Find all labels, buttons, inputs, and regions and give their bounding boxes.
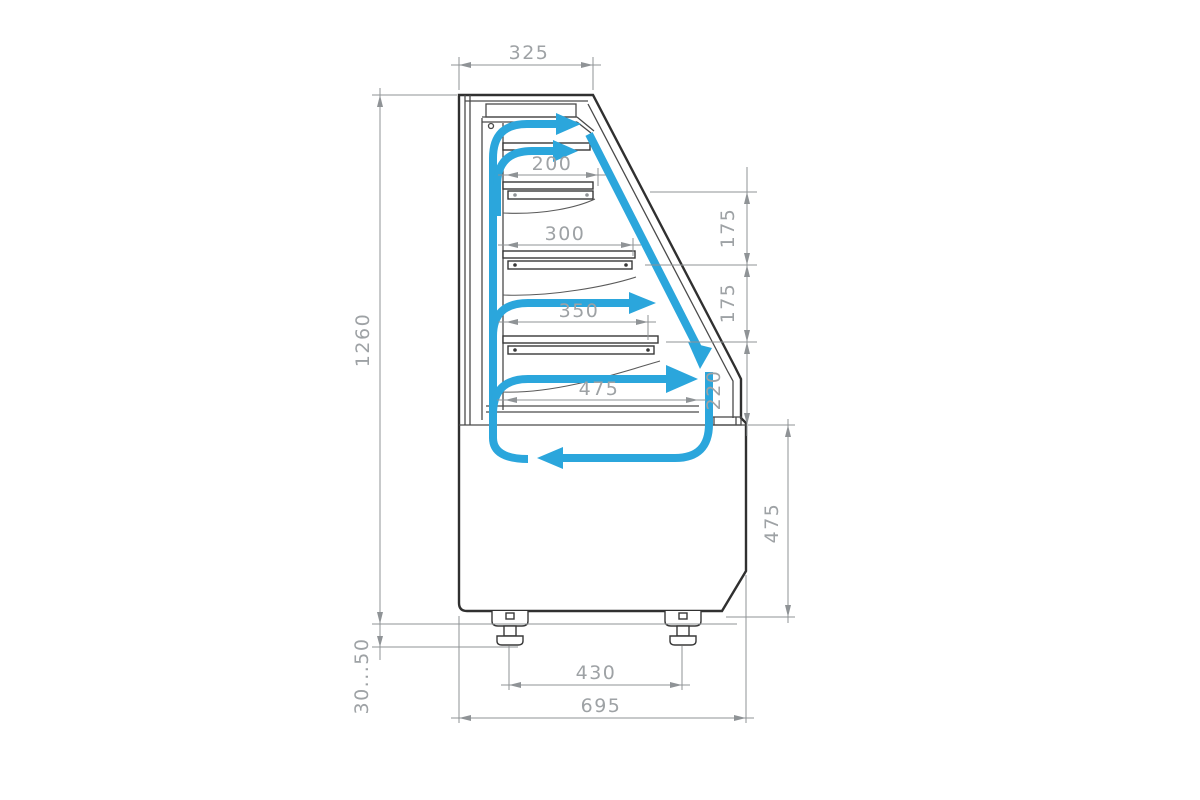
dim-gap-lower-label: 175 [717,283,739,324]
shelf-2-board [503,251,635,258]
shelf-3-board [503,336,658,343]
arrowhead-shelf2-icon [629,292,656,314]
feet [492,611,701,645]
airflow-arrows [493,124,709,459]
display-case-diagram: 325 1260 30...50 430 695 [0,0,1200,800]
front-sill-ticks [714,417,736,425]
dim-front-glass-height-label: 220 [703,370,725,411]
shelf-3-rail [508,346,654,354]
shelf-2-bracket-curve [503,277,636,295]
shelf-1-board [503,182,593,189]
dim-top-depth-label: 325 [509,42,550,64]
dim-base-height-label: 475 [761,503,783,544]
shelf-1-screw-right [585,193,589,197]
adjustable-foot-right [665,611,701,645]
technical-drawing-canvas: 325 1260 30...50 430 695 [0,0,1200,800]
canopy-lamp-box [486,104,576,117]
dim-bottom-shelf-depth-label: 475 [579,378,620,400]
shelf-1-bracket-curve [503,199,595,213]
dim-overall-height: 1260 [352,88,457,624]
dim-overall-depth-label: 695 [581,695,622,717]
shelf-2-screw-right [624,263,628,267]
arrowhead-shelf3-icon [666,365,698,393]
foot-pin [506,613,514,619]
dim-foot-spacing-label: 430 [576,662,617,684]
shelf-3-screw-left [513,348,517,352]
adjustable-foot-left [492,611,528,645]
shelf-1-screw-left [513,193,517,197]
shelf-3-screw-right [646,348,650,352]
dim-top-depth: 325 [451,42,601,90]
dim-foot-spacing: 430 [501,646,690,690]
foot-pad [497,636,523,645]
dim-shelf1-depth-label: 200 [532,153,573,175]
dim-base-height: 475 [726,419,795,623]
dim-foot-adjust-label: 30...50 [351,638,373,715]
dim-overall-depth: 695 [451,575,754,723]
dim-overall-height-label: 1260 [352,313,374,367]
shelf-2-screw-left [513,263,517,267]
arrowhead-return-left-icon [537,447,563,469]
arrowhead-glass-down-icon [688,342,712,369]
back-wall-screw [489,124,494,129]
shelf-1-rail [508,191,593,199]
foot-stem [504,626,516,636]
arrowhead-top-icon [556,113,581,135]
canopy-air-outlet [577,117,594,133]
shelf-2-rail [508,261,632,269]
dim-shelf2-depth-label: 300 [545,223,586,245]
dim-shelf3-depth-label: 350 [559,300,600,322]
dim-gap-upper-label: 175 [717,208,739,249]
